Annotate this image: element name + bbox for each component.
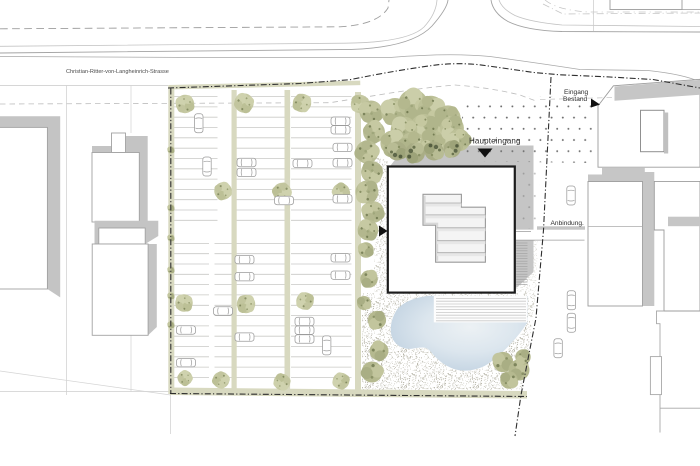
svg-text:Eingang: Eingang [564, 89, 589, 96]
svg-text:Haupteingang: Haupteingang [469, 137, 521, 146]
svg-text:Bestand: Bestand [563, 96, 588, 103]
svg-text:Anbindung.: Anbindung. [551, 220, 585, 227]
svg-text:Christian-Ritter-von-Langheinr: Christian-Ritter-von-Langheinrich-Strass… [66, 69, 169, 75]
